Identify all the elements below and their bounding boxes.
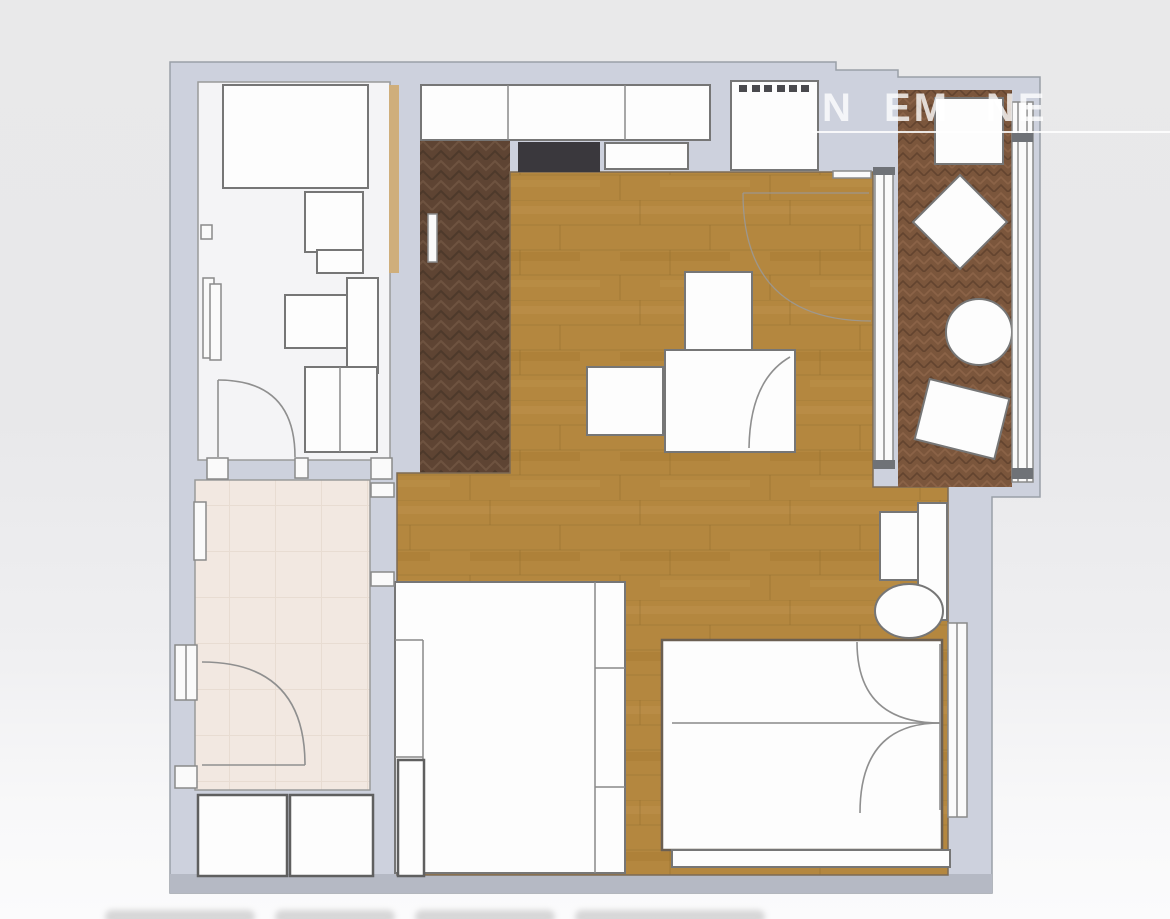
balcony-door-sill-top — [873, 167, 895, 175]
cutoff-caption-artifact — [105, 910, 765, 919]
balcony-round-table — [946, 299, 1012, 365]
pink-room-opening-jamb-top — [371, 483, 394, 497]
dining-chair — [685, 272, 752, 352]
floor-plan — [0, 0, 1170, 919]
shelf-unit — [347, 278, 378, 373]
balcony-window-sill-bottom — [1012, 468, 1033, 479]
washing-machine-base — [317, 250, 363, 273]
cooktop — [518, 142, 600, 172]
bathroom-door-jamb-left — [207, 458, 228, 479]
bed-footer-bench — [672, 850, 950, 867]
balcony-window-sill-top — [1012, 133, 1033, 142]
wall-switch-box — [201, 225, 212, 239]
watermark-fragment-2: EM — [884, 86, 950, 131]
washing-machine — [305, 192, 363, 252]
bathroom-radiator-inner — [210, 284, 221, 360]
nightstand — [880, 512, 922, 580]
entry-herringbone-floor — [420, 140, 510, 473]
bathtub — [223, 85, 368, 188]
closet-left — [198, 795, 287, 876]
bed — [662, 640, 942, 850]
side-table — [587, 367, 663, 435]
bathroom-door-jamb-right — [295, 458, 308, 478]
entry-threshold — [833, 171, 871, 178]
hall-shelf — [428, 214, 437, 262]
sliding-door-wood-panel — [389, 85, 399, 273]
closet-tall — [398, 760, 424, 876]
pink-room-radiator — [194, 502, 206, 560]
balcony-door-sill-bottom — [873, 460, 895, 469]
toilet-cabinet — [305, 367, 377, 452]
watermark-underline — [812, 131, 1170, 133]
kitchen-lower-counter — [605, 143, 688, 169]
floor-plan-screenshot: N EM NE — [0, 0, 1170, 919]
left-wall-window-2 — [175, 766, 197, 788]
round-side-table — [875, 584, 943, 638]
kitchen-counter-run — [421, 85, 710, 140]
pink-room-floor — [195, 480, 370, 790]
closet-right — [290, 795, 373, 876]
stove-appliance — [731, 81, 818, 170]
watermark-fragment-3: NE — [986, 86, 1048, 131]
wardrobe-unit — [395, 582, 625, 873]
sink-cabinet — [285, 295, 347, 348]
pink-room-opening-jamb-bottom — [371, 572, 394, 586]
hall-wall-jamb — [371, 458, 392, 479]
balcony-outer-window — [1012, 102, 1033, 482]
watermark-fragment-1: N — [822, 86, 854, 131]
dining-table — [665, 350, 795, 452]
